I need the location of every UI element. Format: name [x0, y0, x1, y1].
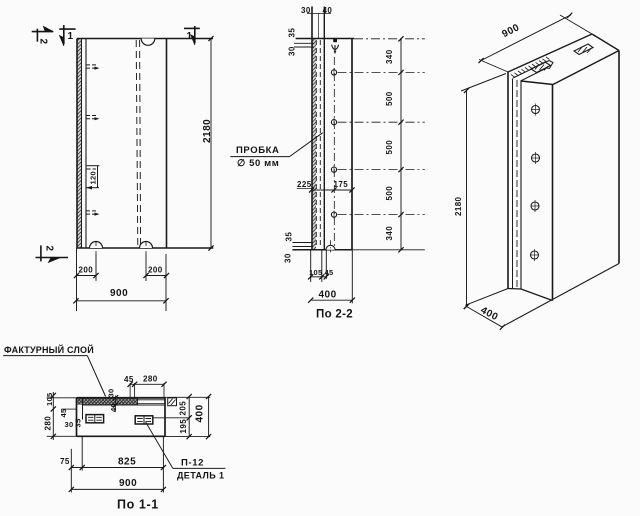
svg-text:900: 900: [110, 288, 128, 299]
svg-text:По 1-1: По 1-1: [117, 498, 159, 512]
svg-text:35: 35: [74, 419, 83, 428]
svg-text:2180: 2180: [202, 119, 213, 143]
svg-text:ПРОБКА: ПРОБКА: [236, 145, 280, 156]
svg-text:30: 30: [284, 253, 293, 263]
svg-text:45: 45: [59, 409, 68, 418]
svg-text:По 2-2: По 2-2: [316, 309, 353, 321]
svg-text:40: 40: [323, 6, 333, 15]
svg-text:225: 225: [297, 180, 312, 189]
svg-text:35: 35: [285, 232, 294, 242]
svg-text:175: 175: [334, 180, 349, 189]
svg-text:2: 2: [44, 246, 55, 252]
svg-text:200: 200: [148, 266, 163, 275]
svg-text:400: 400: [319, 290, 337, 301]
svg-text:1: 1: [68, 31, 74, 42]
svg-text:35: 35: [288, 28, 297, 38]
svg-text:∅ 50 мм: ∅ 50 мм: [237, 158, 279, 169]
svg-text:30: 30: [65, 420, 74, 429]
svg-text:П-12: П-12: [181, 458, 204, 469]
svg-text:500: 500: [385, 140, 394, 155]
svg-text:45: 45: [325, 268, 334, 277]
svg-text:195: 195: [179, 419, 188, 434]
svg-text:500: 500: [385, 186, 394, 201]
svg-text:105: 105: [45, 393, 54, 406]
svg-text:30: 30: [288, 46, 297, 56]
svg-text:400: 400: [195, 404, 206, 422]
svg-text:1: 1: [187, 31, 193, 42]
svg-text:340: 340: [385, 226, 394, 241]
svg-text:500: 500: [385, 91, 394, 106]
svg-text:75: 75: [60, 457, 70, 466]
svg-text:105: 105: [309, 268, 322, 277]
svg-text:2: 2: [38, 39, 49, 45]
svg-text:280: 280: [44, 416, 53, 431]
svg-text:280: 280: [143, 375, 158, 384]
svg-text:200: 200: [79, 266, 94, 275]
svg-text:40: 40: [109, 403, 118, 412]
svg-text:ФАКТУРНЫЙ СЛОЙ: ФАКТУРНЫЙ СЛОЙ: [4, 344, 94, 355]
svg-text:30: 30: [301, 6, 311, 15]
svg-text:ДЕТАЛЬ 1: ДЕТАЛЬ 1: [177, 471, 224, 481]
svg-text:340: 340: [385, 49, 394, 64]
svg-text:30: 30: [107, 389, 116, 398]
svg-text:2180: 2180: [454, 196, 463, 216]
svg-text:900: 900: [119, 478, 137, 489]
svg-text:120: 120: [89, 171, 98, 184]
svg-text:825: 825: [118, 457, 136, 468]
svg-text:45: 45: [124, 375, 134, 384]
svg-text:205: 205: [179, 401, 188, 416]
